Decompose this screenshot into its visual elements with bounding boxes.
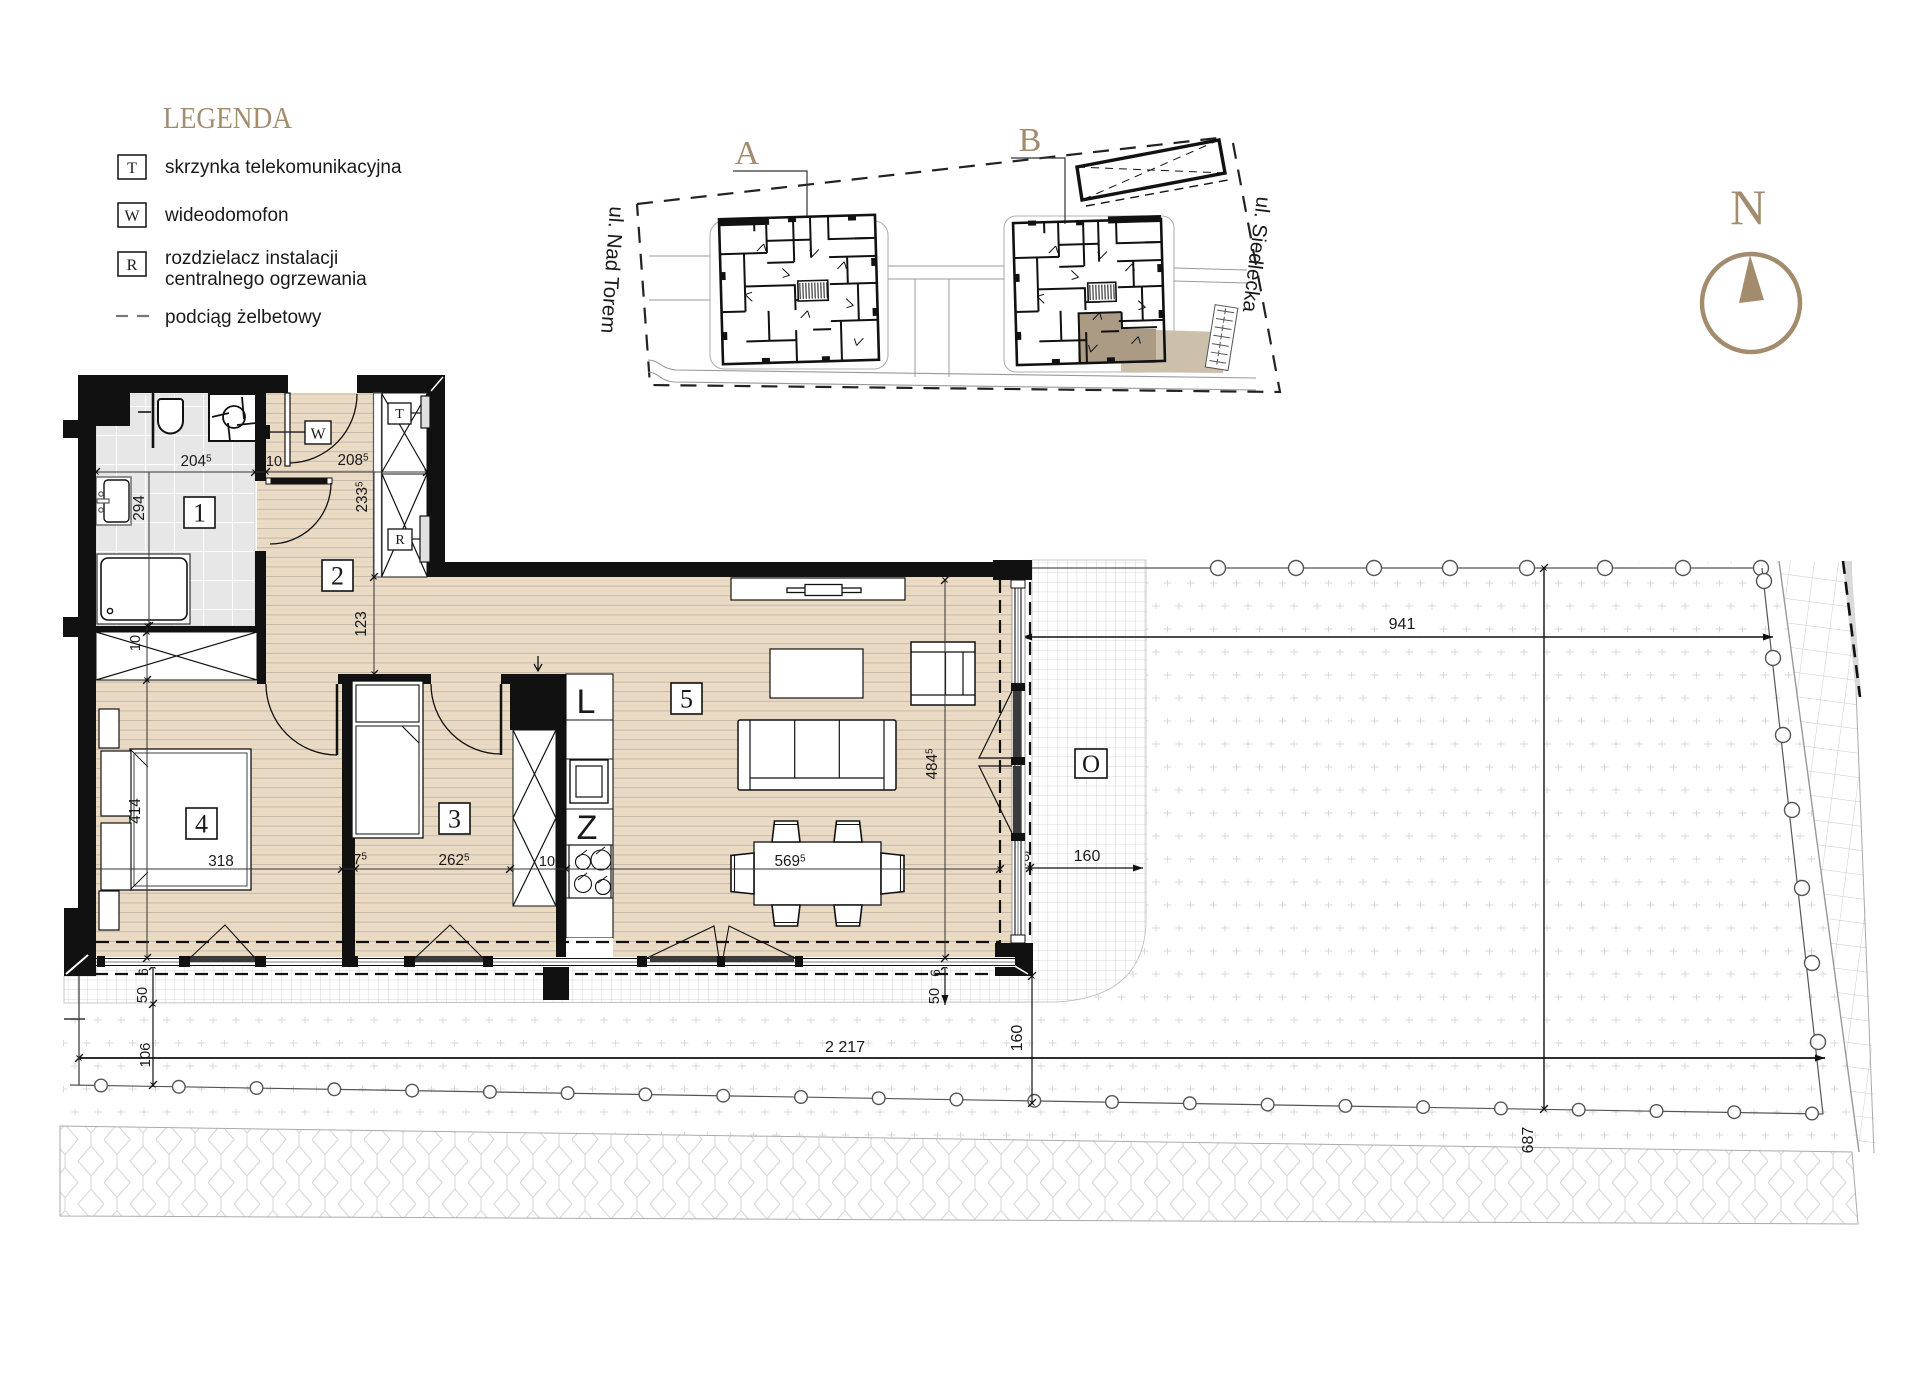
- svg-text:R: R: [395, 533, 405, 548]
- svg-text:2 217: 2 217: [825, 1039, 865, 1056]
- svg-text:Z: Z: [577, 809, 598, 847]
- svg-text:160: 160: [1074, 848, 1101, 865]
- svg-text:414: 414: [127, 798, 144, 824]
- svg-text:A: A: [735, 135, 760, 172]
- svg-text:W: W: [124, 208, 140, 225]
- svg-text:podciąg żelbetowy: podciąg żelbetowy: [165, 307, 322, 328]
- svg-text:centralnego ogrzewania: centralnego ogrzewania: [165, 269, 367, 290]
- svg-text:2: 2: [331, 562, 344, 591]
- svg-text:R: R: [127, 257, 138, 274]
- svg-text:294: 294: [131, 495, 148, 521]
- svg-text:T: T: [127, 160, 137, 177]
- svg-text:1: 1: [193, 499, 206, 528]
- svg-text:LEGENDA: LEGENDA: [163, 100, 293, 135]
- svg-text:O: O: [1082, 751, 1100, 778]
- svg-text:50: 50: [135, 987, 151, 1003]
- svg-text:687: 687: [1520, 1127, 1537, 1154]
- svg-text:941: 941: [1389, 616, 1416, 633]
- svg-text:10: 10: [128, 635, 144, 651]
- svg-text:10: 10: [539, 854, 555, 870]
- svg-text:rozdzielacz instalacji: rozdzielacz instalacji: [165, 248, 338, 269]
- svg-text:wideodomofon: wideodomofon: [164, 205, 289, 226]
- svg-text:106: 106: [137, 1042, 154, 1067]
- svg-text:skrzynka telekomunikacyjna: skrzynka telekomunikacyjna: [165, 157, 402, 178]
- svg-text:5: 5: [680, 685, 693, 714]
- svg-text:4: 4: [195, 810, 208, 839]
- svg-text:W: W: [310, 426, 326, 443]
- svg-text:318: 318: [208, 853, 234, 870]
- svg-text:N: N: [1730, 179, 1766, 235]
- svg-text:10: 10: [266, 454, 282, 470]
- svg-text:50: 50: [927, 988, 943, 1004]
- svg-text:L: L: [577, 683, 596, 721]
- svg-text:123: 123: [353, 611, 370, 637]
- svg-text:B: B: [1019, 122, 1042, 159]
- svg-text:160: 160: [1009, 1025, 1026, 1052]
- svg-text:T: T: [395, 407, 404, 422]
- svg-text:3: 3: [448, 805, 461, 834]
